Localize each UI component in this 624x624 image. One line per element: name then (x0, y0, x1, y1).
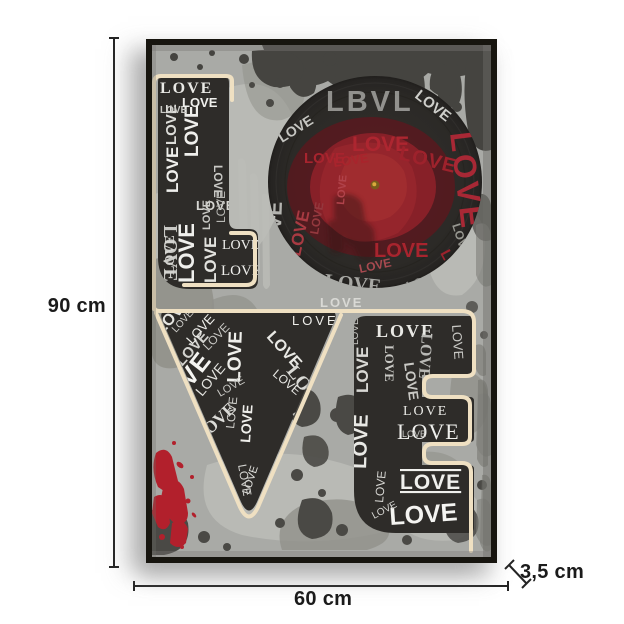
svg-text:LOVE: LOVE (163, 147, 182, 193)
svg-text:LOVE: LOVE (382, 345, 397, 382)
svg-text:LOVE: LOVE (163, 235, 178, 275)
svg-text:LOVE: LOVE (237, 404, 256, 443)
svg-text:LOVE: LOVE (353, 347, 372, 393)
svg-text:LOVE: LOVE (403, 404, 448, 419)
svg-text:LOVE: LOVE (201, 237, 220, 283)
svg-text:LOVE: LOVE (320, 295, 363, 310)
svg-text:LOVE: LOVE (449, 324, 466, 360)
svg-text:LOVE: LOVE (402, 429, 426, 439)
svg-text:LOVE: LOVE (372, 470, 389, 503)
svg-text:LOVE: LOVE (182, 95, 218, 110)
svg-text:LOVE: LOVE (292, 313, 339, 328)
svg-text:LOVE: LOVE (388, 498, 458, 531)
svg-text:LOVE: LOVE (214, 191, 228, 223)
svg-text:LOVE: LOVE (224, 331, 247, 383)
svg-text:LBVL: LBVL (326, 86, 414, 118)
svg-text:LOVE: LOVE (415, 333, 435, 379)
svg-text:LOVE: LOVE (400, 471, 461, 494)
svg-text:LOVE: LOVE (374, 240, 428, 262)
svg-text:LOVE: LOVE (201, 200, 213, 230)
